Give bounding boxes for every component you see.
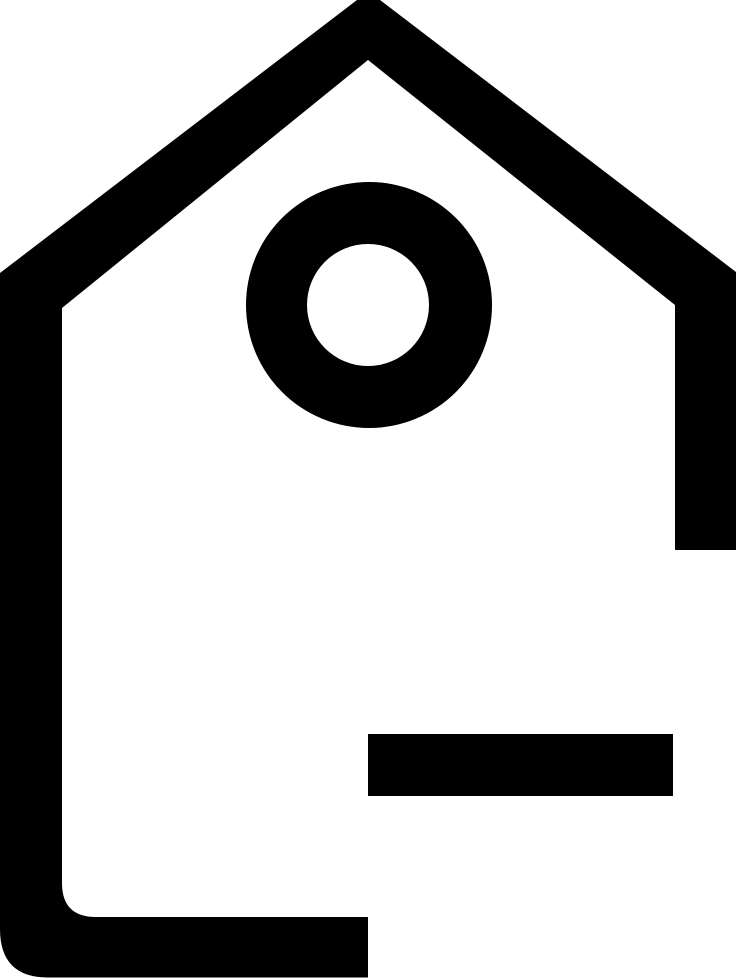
tag-outline-shape [0, 0, 736, 978]
icon-canvas [0, 0, 736, 980]
page-background: { "page": { "width_px": 736, "height_px"… [0, 0, 736, 980]
tag-hole-icon [246, 182, 492, 428]
price-tag-icon [0, 0, 736, 980]
tag-label-bar [368, 734, 673, 796]
